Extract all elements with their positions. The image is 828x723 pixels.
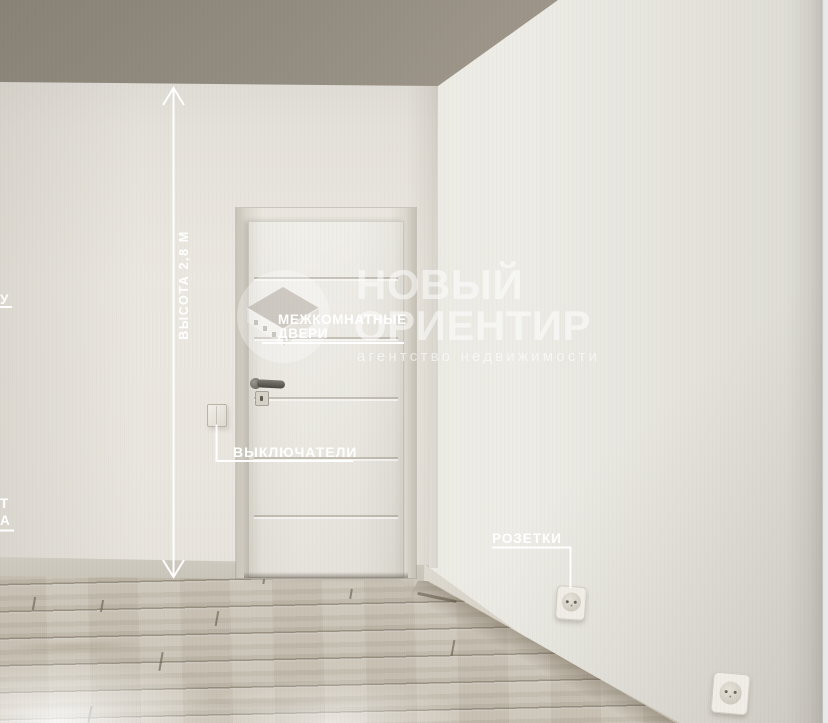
door-groove	[254, 397, 398, 401]
watermark-title-line1: НОВЫЙ	[356, 264, 523, 306]
power-socket	[710, 671, 750, 715]
door-handle-lever	[257, 379, 285, 388]
left-edge-label-fragment-top: У	[0, 292, 9, 307]
socket-outlet	[561, 592, 581, 612]
door-label-line2: ДВЕРИ	[278, 327, 407, 341]
annotated-room-photo: НОВЫЙ ОРИЕНТИР агентство недвижимости ВЫ…	[0, 0, 828, 723]
left-edge-label-fragment-bottom: Т А	[0, 496, 10, 529]
light-switch	[207, 404, 227, 427]
sockets-annotation-label: РОЗЕТКИ	[492, 531, 562, 546]
socket-outlet	[718, 680, 743, 705]
photo-right-edge	[786, 0, 828, 723]
watermark-subtitle: агентство недвижимости	[357, 348, 600, 365]
height-dimension-label: ВЫСОТА 2,8 М	[177, 230, 191, 340]
door-bottom-shadow	[244, 572, 408, 578]
door-annotation-label: МЕЖКОМНАТНЫЕ ДВЕРИ	[278, 313, 407, 340]
door-keyhole-plate	[255, 391, 269, 406]
switches-annotation-label: ВЫКЛЮЧАТЕЛИ	[233, 444, 357, 460]
door-label-line1: МЕЖКОМНАТНЫЕ	[278, 313, 407, 327]
door-groove	[254, 515, 398, 519]
power-socket	[555, 585, 587, 621]
